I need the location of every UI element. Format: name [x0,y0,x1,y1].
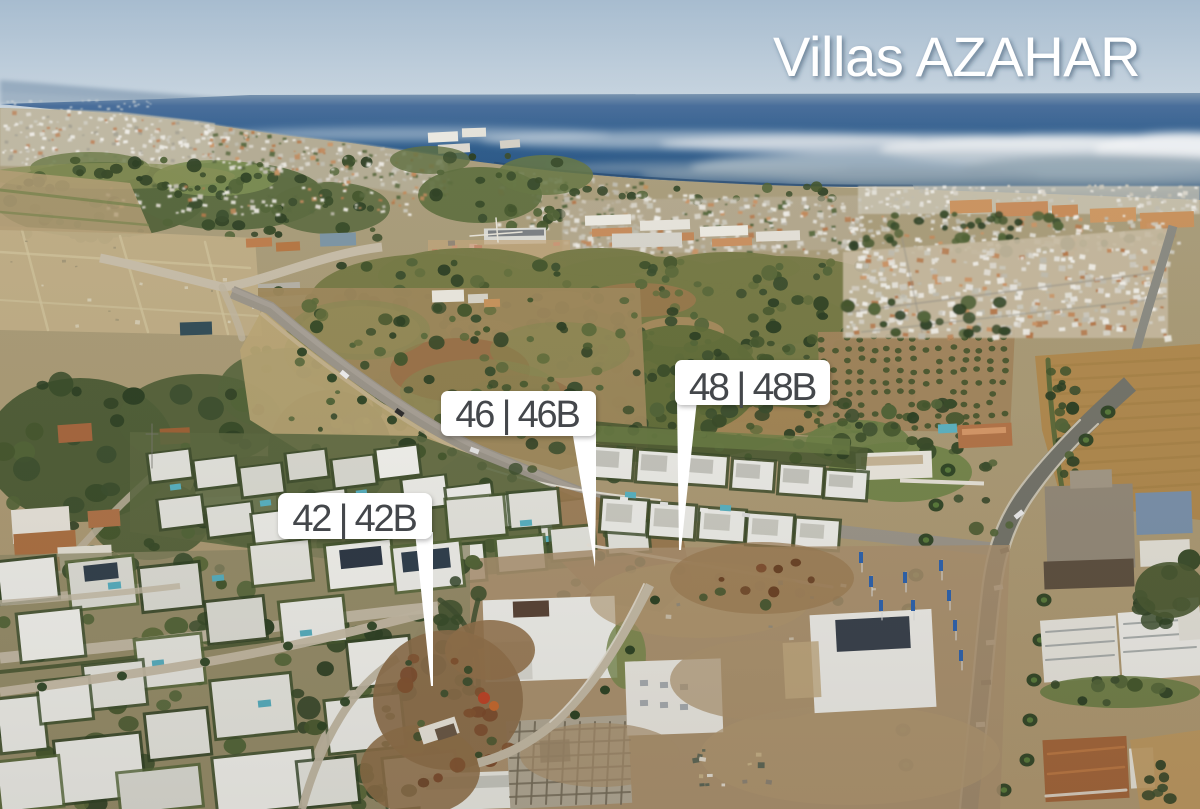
svg-text:46 | 46B: 46 | 46B [455,394,579,436]
svg-text:Villas AZAHAR: Villas AZAHAR [773,25,1140,88]
svg-text:48 | 48B: 48 | 48B [689,366,815,409]
svg-text:42 | 42B: 42 | 42B [292,498,416,540]
